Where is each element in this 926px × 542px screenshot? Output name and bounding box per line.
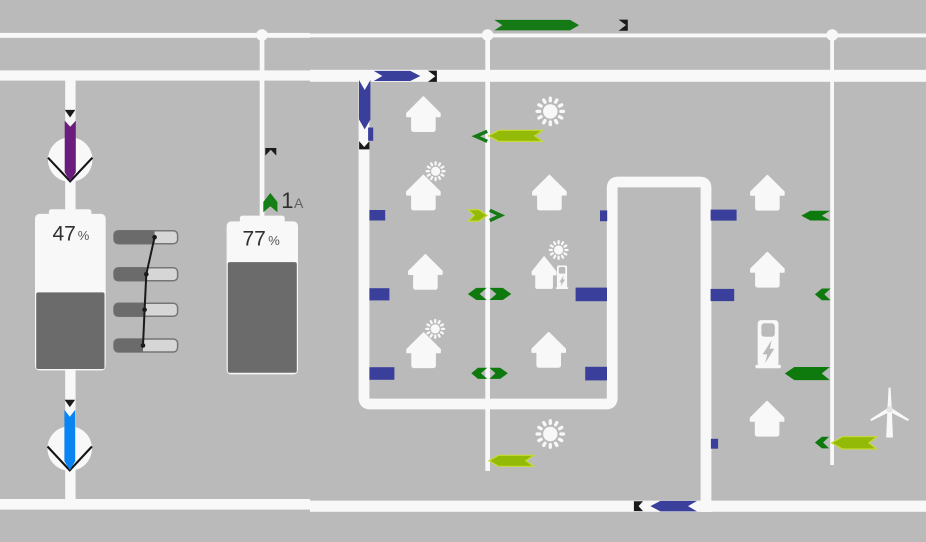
- svg-text:%: %: [78, 228, 90, 243]
- svg-text:77: 77: [243, 228, 266, 251]
- svg-text:%: %: [268, 233, 280, 248]
- svg-text:A: A: [294, 195, 304, 211]
- svg-text:47: 47: [53, 223, 76, 246]
- svg-text:1: 1: [281, 188, 293, 213]
